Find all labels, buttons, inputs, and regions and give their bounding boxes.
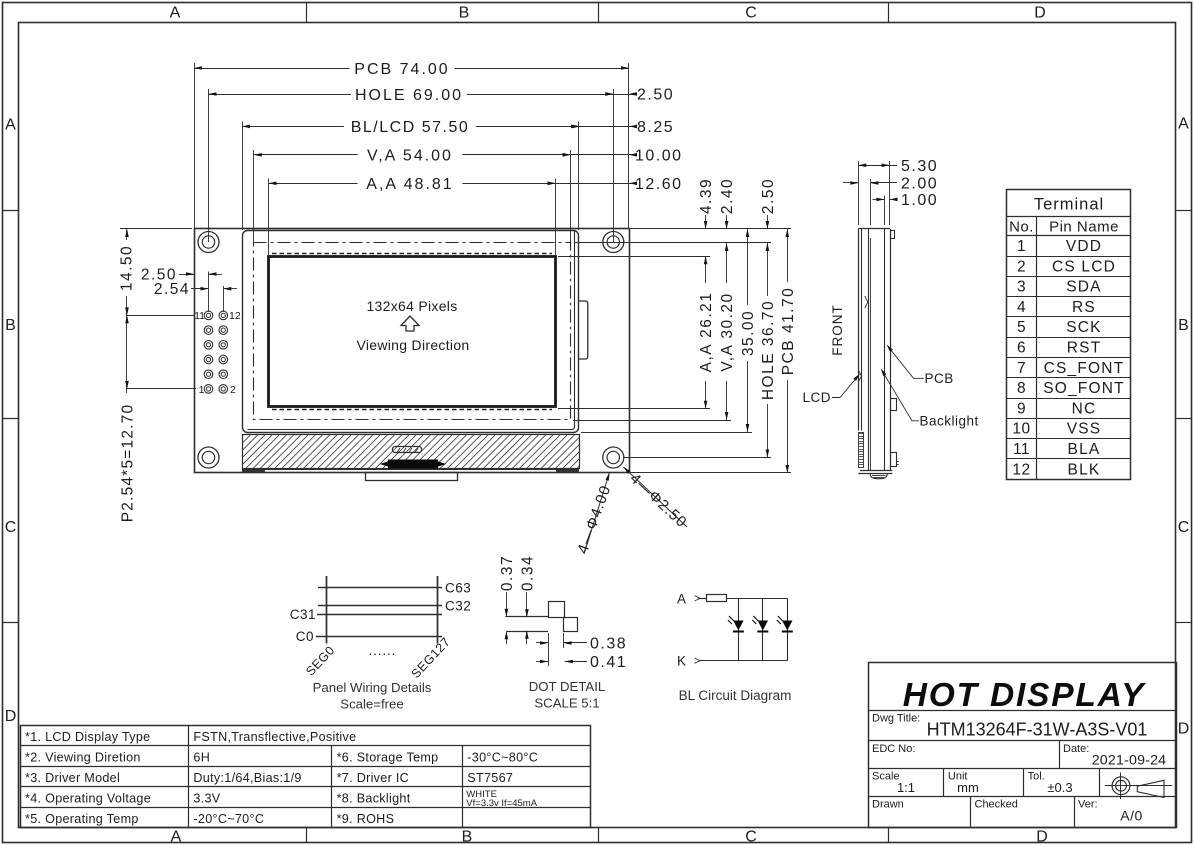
- svg-text:3: 3: [1017, 279, 1026, 296]
- svg-text:CS_FONT: CS_FONT: [1044, 360, 1125, 377]
- svg-text:C: C: [745, 829, 757, 845]
- svg-text:6H: 6H: [193, 750, 210, 764]
- svg-text:C: C: [5, 519, 17, 536]
- svg-text:2: 2: [230, 384, 236, 396]
- svg-text:......: ......: [369, 643, 397, 658]
- svg-text:-20°C~70°C: -20°C~70°C: [193, 812, 264, 826]
- svg-text:2.40: 2.40: [719, 178, 736, 214]
- svg-text:0.38: 0.38: [590, 636, 627, 653]
- svg-text:±0.3: ±0.3: [1047, 780, 1072, 795]
- svg-text:14.50: 14.50: [119, 245, 136, 291]
- svg-text:4.39: 4.39: [698, 178, 715, 214]
- svg-text:Vf=3.3v If=45mA: Vf=3.3v If=45mA: [466, 798, 537, 809]
- svg-text:EDC No:: EDC No:: [872, 743, 915, 755]
- svg-text:*7. Driver IC: *7. Driver IC: [337, 771, 409, 785]
- svg-text:1: 1: [199, 384, 205, 396]
- svg-text:BL/LCD 57.50: BL/LCD 57.50: [351, 119, 470, 136]
- svg-text:*6. Storage Temp: *6. Storage Temp: [337, 750, 439, 764]
- svg-text:BL Circuit Diagram: BL Circuit Diagram: [679, 688, 792, 703]
- svg-text:PCB 74.00: PCB 74.00: [354, 61, 449, 78]
- svg-text:Terminal: Terminal: [1034, 196, 1104, 214]
- svg-text:Dwg Title:: Dwg Title:: [872, 713, 920, 725]
- svg-text:12: 12: [229, 310, 241, 322]
- svg-text:Tol.: Tol.: [1028, 771, 1045, 783]
- svg-text:C31: C31: [290, 607, 316, 622]
- svg-text:0.37: 0.37: [499, 555, 516, 591]
- svg-text:C: C: [1178, 519, 1190, 536]
- svg-text:C: C: [745, 5, 757, 22]
- svg-text:FSTN,Transflective,Positive: FSTN,Transflective,Positive: [193, 730, 356, 744]
- svg-text:FRONT: FRONT: [830, 304, 845, 356]
- svg-text:8: 8: [1017, 380, 1026, 397]
- svg-text:4: 4: [1017, 299, 1026, 316]
- svg-text:1: 1: [1017, 238, 1026, 255]
- svg-text:P2.54*5=12.70: P2.54*5=12.70: [120, 404, 137, 523]
- svg-text:DOT DETAIL: DOT DETAIL: [529, 679, 605, 694]
- svg-text:SCK: SCK: [1066, 319, 1101, 336]
- svg-text:A/0: A/0: [1120, 808, 1143, 824]
- svg-text:VDD: VDD: [1066, 238, 1102, 255]
- svg-text:2: 2: [1017, 258, 1026, 275]
- svg-text:-30°C~80°C: -30°C~80°C: [467, 750, 538, 764]
- svg-text:Drawn: Drawn: [872, 799, 904, 811]
- svg-text:11: 11: [1013, 441, 1030, 458]
- svg-text:HTM13264F-31W-A3S-V01: HTM13264F-31W-A3S-V01: [927, 720, 1148, 740]
- svg-text:B: B: [459, 5, 470, 22]
- svg-text:2.50: 2.50: [637, 87, 674, 104]
- svg-text:2021-09-24: 2021-09-24: [1092, 753, 1167, 769]
- svg-text:8.25: 8.25: [637, 119, 674, 136]
- svg-text:HOT DISPLAY: HOT DISPLAY: [903, 677, 1146, 714]
- svg-text:A,A 48.81: A,A 48.81: [366, 176, 453, 193]
- svg-text:BLK: BLK: [1068, 461, 1101, 478]
- svg-text:Pin Name: Pin Name: [1049, 219, 1119, 236]
- svg-text:SDA: SDA: [1066, 279, 1101, 296]
- svg-text:*9. ROHS: *9. ROHS: [337, 812, 395, 826]
- svg-text:RST: RST: [1067, 340, 1102, 357]
- svg-text:Viewing Direction: Viewing Direction: [356, 337, 469, 353]
- svg-text:B: B: [5, 317, 16, 334]
- svg-text:6: 6: [1017, 340, 1026, 357]
- svg-text:*3. Driver Model: *3. Driver Model: [25, 771, 120, 785]
- svg-text:*2. Viewing Diretion: *2. Viewing Diretion: [25, 750, 141, 764]
- svg-text:D: D: [1036, 829, 1048, 845]
- svg-text:5.30: 5.30: [901, 158, 938, 175]
- svg-text:Date:: Date:: [1063, 743, 1089, 755]
- svg-text:RS: RS: [1072, 299, 1096, 316]
- svg-text:9: 9: [1017, 400, 1026, 417]
- svg-text:Scale=free: Scale=free: [340, 697, 403, 712]
- svg-text:11: 11: [194, 310, 205, 322]
- svg-text:A: A: [170, 5, 181, 22]
- svg-text:V,A 30.20: V,A 30.20: [719, 292, 736, 371]
- svg-text:No.: No.: [1009, 219, 1034, 236]
- svg-text:10.00: 10.00: [635, 148, 683, 165]
- svg-text:Panel Wiring Details: Panel Wiring Details: [313, 680, 432, 695]
- svg-text:132x64 Pixels: 132x64 Pixels: [366, 298, 457, 314]
- svg-text:*4. Operating Voltage: *4. Operating Voltage: [25, 792, 151, 806]
- svg-text:BLA: BLA: [1068, 441, 1101, 458]
- svg-text:7: 7: [1017, 360, 1026, 377]
- svg-text:*1. LCD Display Type: *1. LCD Display Type: [25, 730, 150, 744]
- svg-text:12.60: 12.60: [635, 176, 683, 193]
- svg-text:A: A: [5, 117, 16, 134]
- svg-text:C0: C0: [296, 629, 314, 644]
- svg-text:*8. Backlight: *8. Backlight: [337, 792, 411, 806]
- svg-text:ST7567: ST7567: [467, 771, 513, 785]
- svg-text:HOLE 36.70: HOLE 36.70: [760, 300, 777, 400]
- svg-text:D: D: [1034, 5, 1046, 22]
- svg-text:*5. Operating Temp: *5. Operating Temp: [25, 812, 139, 826]
- svg-text:C63: C63: [445, 580, 471, 595]
- svg-text:35.00: 35.00: [740, 310, 757, 356]
- svg-text:3.3V: 3.3V: [193, 792, 220, 806]
- svg-text:0.41: 0.41: [590, 654, 627, 671]
- svg-text:A: A: [1178, 116, 1189, 133]
- svg-text:0.34: 0.34: [519, 555, 536, 591]
- svg-text:NC: NC: [1072, 400, 1097, 417]
- svg-text:SO_FONT: SO_FONT: [1043, 380, 1125, 397]
- svg-text:HOLE 69.00: HOLE 69.00: [355, 87, 463, 104]
- svg-text:V,A 54.00: V,A 54.00: [367, 148, 453, 165]
- svg-text:Duty:1/64,Bias:1/9: Duty:1/64,Bias:1/9: [193, 771, 301, 785]
- svg-text:D: D: [5, 708, 17, 725]
- svg-text:B: B: [1178, 317, 1189, 334]
- svg-text:Checked: Checked: [975, 799, 1018, 811]
- svg-text:mm: mm: [957, 780, 979, 795]
- svg-text:K: K: [677, 654, 686, 669]
- svg-text:C32: C32: [445, 598, 471, 613]
- svg-text:5: 5: [1017, 319, 1026, 336]
- svg-text:CS LCD: CS LCD: [1052, 258, 1116, 275]
- svg-text:10: 10: [1012, 421, 1030, 438]
- svg-text:1:1: 1:1: [897, 780, 915, 795]
- svg-text:B: B: [462, 829, 473, 845]
- svg-text:LCD: LCD: [802, 390, 831, 405]
- svg-text:A: A: [171, 829, 182, 845]
- svg-text:12: 12: [1012, 461, 1030, 478]
- svg-text:PCB: PCB: [925, 371, 954, 386]
- svg-text:Scale: Scale: [872, 771, 900, 783]
- svg-text:VSS: VSS: [1067, 421, 1102, 438]
- svg-text:A,A 26.21: A,A 26.21: [698, 292, 715, 373]
- svg-text:2.54: 2.54: [154, 281, 190, 298]
- svg-text:1.00: 1.00: [901, 192, 938, 209]
- svg-text:2.50: 2.50: [760, 178, 777, 214]
- svg-text:SCALE 5:1: SCALE 5:1: [534, 696, 599, 711]
- svg-text:Backlight: Backlight: [920, 414, 979, 429]
- svg-text:D: D: [1178, 721, 1190, 738]
- svg-text:Ver:: Ver:: [1078, 799, 1098, 811]
- svg-text:A: A: [677, 591, 686, 606]
- svg-text:2.00: 2.00: [901, 176, 938, 193]
- svg-text:PCB 41.70: PCB 41.70: [780, 287, 797, 375]
